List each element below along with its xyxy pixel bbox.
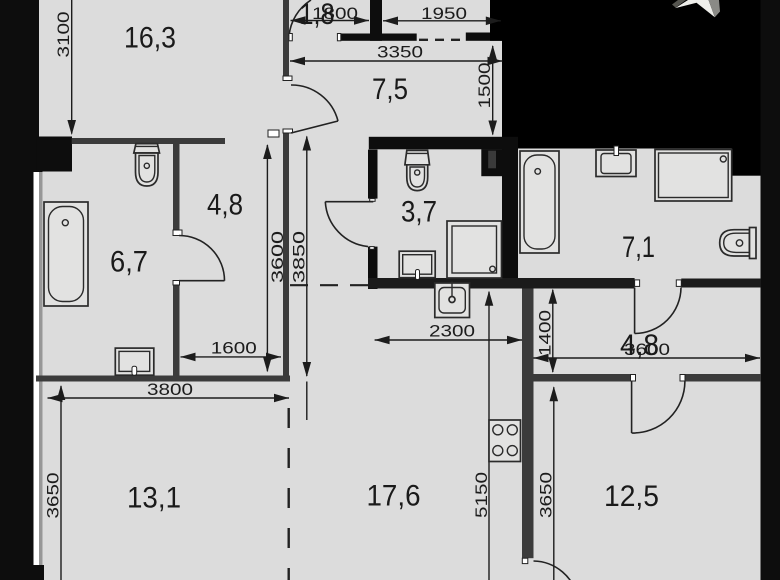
svg-text:2300: 2300: [429, 323, 475, 341]
svg-text:4,8: 4,8: [620, 329, 659, 362]
svg-text:1600: 1600: [211, 340, 257, 358]
svg-text:17,6: 17,6: [367, 480, 421, 513]
svg-text:3650: 3650: [538, 472, 556, 518]
svg-text:3850: 3850: [291, 231, 309, 283]
svg-text:3800: 3800: [147, 381, 193, 399]
svg-text:3650: 3650: [45, 473, 63, 519]
svg-text:3350: 3350: [377, 44, 423, 62]
svg-text:6,7: 6,7: [110, 246, 148, 279]
svg-text:3,7: 3,7: [401, 196, 437, 229]
svg-text:5150: 5150: [473, 472, 491, 518]
svg-text:1500: 1500: [476, 63, 494, 109]
svg-text:4,8: 4,8: [207, 189, 243, 222]
svg-text:1950: 1950: [421, 5, 467, 23]
svg-text:7,5: 7,5: [372, 73, 408, 106]
svg-text:13,1: 13,1: [127, 482, 181, 515]
svg-text:12,5: 12,5: [604, 480, 659, 513]
svg-text:16,3: 16,3: [124, 22, 176, 55]
svg-text:1,8: 1,8: [300, 0, 335, 31]
svg-text:3100: 3100: [55, 11, 73, 57]
svg-text:3600: 3600: [269, 231, 287, 283]
svg-text:7,1: 7,1: [622, 231, 655, 264]
svg-text:1400: 1400: [537, 310, 555, 356]
